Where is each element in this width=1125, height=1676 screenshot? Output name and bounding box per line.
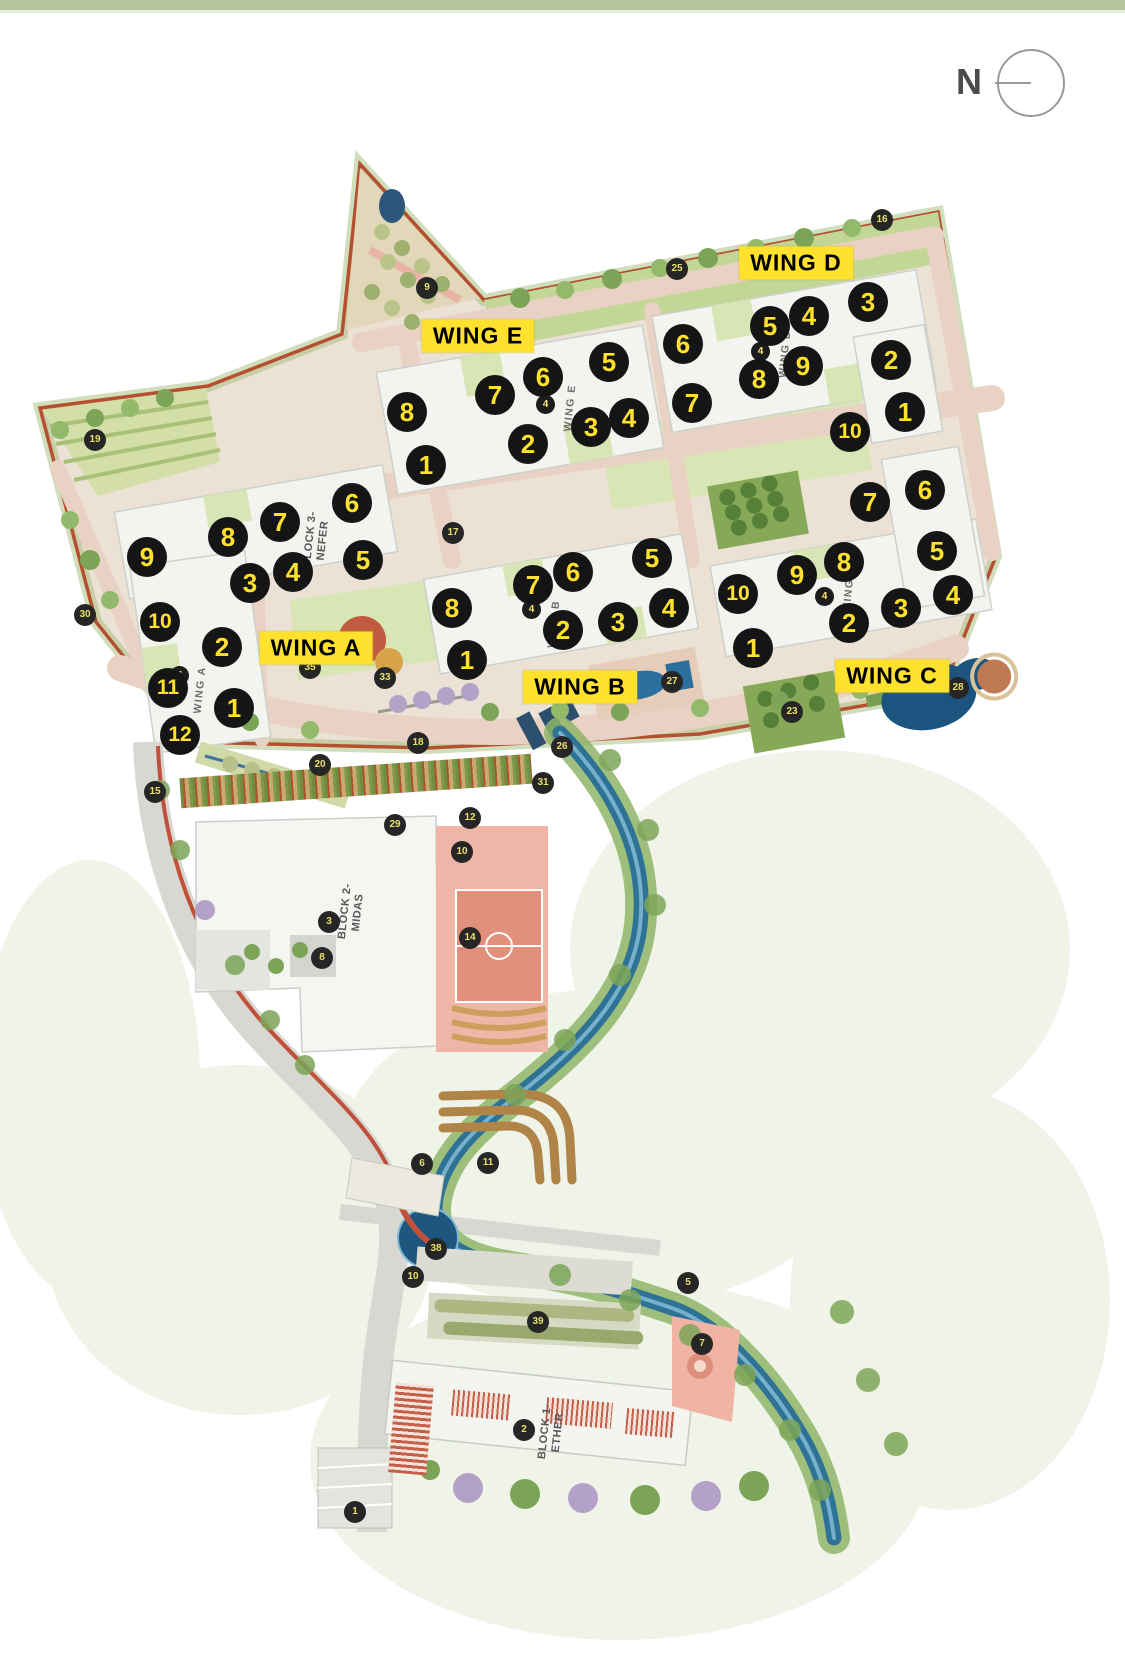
legend-ref-marker-17-4: 17 <box>442 522 464 544</box>
unit-marker-wing-c-6: 6 <box>905 470 945 510</box>
unit-marker-wing-a-4: 4 <box>273 552 313 592</box>
legend-ref-marker-2-29: 2 <box>513 1419 535 1441</box>
unit-marker-wing-c-8: 8 <box>824 542 864 582</box>
wing-label-d: WING D <box>739 247 853 280</box>
unit-marker-wing-c-9: 9 <box>777 555 817 595</box>
unit-marker-wing-e-3: 3 <box>571 407 611 447</box>
unit-marker-wing-b-6: 6 <box>553 552 593 592</box>
unit-marker-wing-a-6: 6 <box>332 483 372 523</box>
unit-marker-wing-c-10: 10 <box>718 574 758 614</box>
unit-marker-wing-e-8: 8 <box>387 392 427 432</box>
unit-marker-wing-e-6: 6 <box>523 357 563 397</box>
unit-marker-wing-c-5: 5 <box>917 531 957 571</box>
unit-marker-wing-a-11: 11 <box>148 668 188 708</box>
unit-marker-wing-b-2: 2 <box>543 610 583 650</box>
unit-marker-wing-d-1: 1 <box>885 392 925 432</box>
legend-ref-marker-25-2: 25 <box>666 258 688 280</box>
unit-marker-wing-d-9: 9 <box>783 346 823 386</box>
legend-ref-marker-20-8: 20 <box>309 754 331 776</box>
legend-ref-marker-28-9: 28 <box>947 677 969 699</box>
unit-marker-wing-c-4: 4 <box>933 575 973 615</box>
legend-ref-marker-30-5: 30 <box>74 604 96 626</box>
legend-ref-marker-26-12: 26 <box>551 736 573 758</box>
legend-ref-marker-11-23: 11 <box>477 1152 499 1174</box>
legend-ref-marker-33-7: 33 <box>374 667 396 689</box>
legend-ref-marker-12-16: 12 <box>459 807 481 829</box>
wing-label-a: WING A <box>260 632 373 665</box>
unit-marker-wing-a-2: 2 <box>202 627 242 667</box>
wing-label-b: WING B <box>523 671 637 704</box>
legend-ref-marker-1-30: 1 <box>344 1501 366 1523</box>
legend-ref-marker-5-27: 5 <box>677 1272 699 1294</box>
unit-marker-wing-b-3: 3 <box>598 602 638 642</box>
unit-marker-wing-a-5: 5 <box>343 540 383 580</box>
unit-marker-wing-e-7: 7 <box>475 375 515 415</box>
legend-ref-marker-7-28: 7 <box>691 1333 713 1355</box>
unit-marker-wing-b-1: 1 <box>447 640 487 680</box>
unit-marker-wing-a-7: 7 <box>260 502 300 542</box>
wing-name-tag-a: WING A <box>192 666 209 715</box>
unit-marker-wing-d-2: 2 <box>871 340 911 380</box>
unit-marker-wing-a-10: 10 <box>140 602 180 642</box>
wing-label-e: WING E <box>422 320 534 353</box>
unit-marker-wing-b-5: 5 <box>632 538 672 578</box>
unit-marker-wing-a-1: 1 <box>214 688 254 728</box>
legend-ref-marker-39-26: 39 <box>527 1311 549 1333</box>
unit-marker-wing-a-8: 8 <box>208 517 248 557</box>
legend-ref-marker-38-24: 38 <box>425 1238 447 1260</box>
block1-striped-unit <box>388 1383 434 1476</box>
unit-marker-wing-b-8: 8 <box>432 588 472 628</box>
legend-ref-marker-8-20: 8 <box>311 947 333 969</box>
unit-marker-wing-d-10: 10 <box>830 412 870 452</box>
unit-marker-wing-d-8: 8 <box>739 359 779 399</box>
wing-label-c: WING C <box>835 660 949 693</box>
unit-marker-wing-b-4: 4 <box>649 588 689 628</box>
unit-marker-wing-a-9: 9 <box>127 537 167 577</box>
unit-marker-wing-a-12: 12 <box>160 715 200 755</box>
map-overlay: 1234567891011124WING AWING A123456784WIN… <box>0 0 1125 1676</box>
legend-ref-marker-19-1: 19 <box>84 429 106 451</box>
unit-marker-wing-c-3: 3 <box>881 588 921 628</box>
block-ref-wing-e: 4 <box>536 395 555 414</box>
block1-striped-unit <box>451 1390 511 1421</box>
legend-ref-marker-14-21: 14 <box>459 927 481 949</box>
unit-marker-wing-d-5: 5 <box>750 306 790 346</box>
legend-ref-marker-10-18: 10 <box>451 841 473 863</box>
unit-marker-wing-e-1: 1 <box>406 445 446 485</box>
legend-ref-marker-18-13: 18 <box>407 732 429 754</box>
unit-marker-wing-b-7: 7 <box>513 565 553 605</box>
block-ref-wing-c: 4 <box>815 587 834 606</box>
unit-marker-wing-e-4: 4 <box>609 398 649 438</box>
legend-ref-marker-10-25: 10 <box>402 1266 424 1288</box>
legend-ref-marker-31-14: 31 <box>532 772 554 794</box>
unit-marker-wing-d-7: 7 <box>672 383 712 423</box>
unit-marker-wing-c-7: 7 <box>850 482 890 522</box>
block-label-2: BLOCK 2-MIDAS <box>336 883 368 941</box>
unit-marker-wing-d-3: 3 <box>848 282 888 322</box>
legend-ref-marker-3-19: 3 <box>318 911 340 933</box>
legend-ref-marker-29-17: 29 <box>384 814 406 836</box>
unit-marker-wing-c-2: 2 <box>829 603 869 643</box>
legend-ref-marker-23-10: 23 <box>781 701 803 723</box>
legend-ref-marker-15-15: 15 <box>144 781 166 803</box>
legend-ref-marker-27-11: 27 <box>661 671 683 693</box>
unit-marker-wing-e-5: 5 <box>589 342 629 382</box>
site-plan-canvas: N 1234567891011124WING AWING A123456784W… <box>0 0 1125 1676</box>
unit-marker-wing-e-2: 2 <box>508 424 548 464</box>
unit-marker-wing-d-6: 6 <box>663 324 703 364</box>
block1-striped-unit <box>625 1408 675 1438</box>
unit-marker-wing-d-4: 4 <box>789 296 829 336</box>
unit-marker-wing-a-3: 3 <box>230 563 270 603</box>
legend-ref-marker-6-22: 6 <box>411 1153 433 1175</box>
legend-ref-marker-16-3: 16 <box>871 209 893 231</box>
legend-ref-marker-9-0: 9 <box>416 277 438 299</box>
block-label-1: BLOCK 1-ETHER <box>536 1403 568 1461</box>
unit-marker-wing-c-1: 1 <box>733 628 773 668</box>
